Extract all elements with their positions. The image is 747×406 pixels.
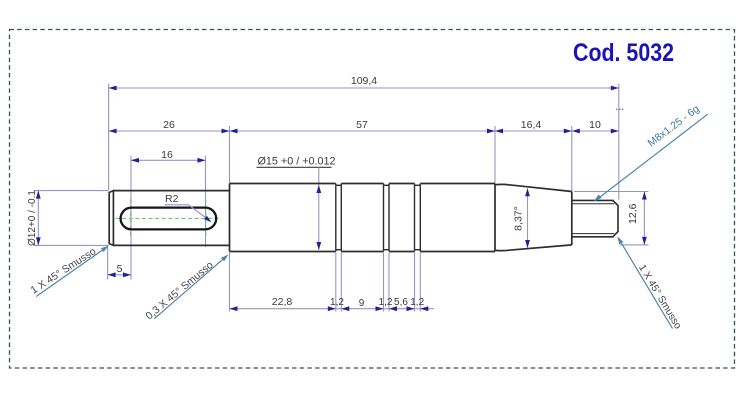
svg-text:16: 16 xyxy=(161,149,173,161)
svg-text:Ø15 +0 / +0.012: Ø15 +0 / +0.012 xyxy=(258,156,336,168)
svg-text:16,4: 16,4 xyxy=(521,119,542,131)
svg-text:109,4: 109,4 xyxy=(351,75,377,87)
svg-text:22,8: 22,8 xyxy=(272,296,293,308)
svg-text:R2: R2 xyxy=(165,193,179,205)
svg-text:Ø12+0 / -0.1: Ø12+0 / -0.1 xyxy=(27,190,38,246)
svg-text:9: 9 xyxy=(359,298,365,309)
svg-text:12,6: 12,6 xyxy=(627,203,639,224)
svg-text:8,37°: 8,37° xyxy=(513,206,525,231)
svg-text:1,2: 1,2 xyxy=(379,297,393,308)
svg-text:26: 26 xyxy=(163,119,175,131)
svg-text:5: 5 xyxy=(117,263,123,275)
svg-text:1,2: 1,2 xyxy=(330,297,344,308)
svg-text:10: 10 xyxy=(589,119,601,131)
svg-text:57: 57 xyxy=(356,119,368,131)
svg-text:1,2: 1,2 xyxy=(410,297,424,308)
svg-text:5,6: 5,6 xyxy=(394,297,408,308)
svg-text:Cod. 5032: Cod. 5032 xyxy=(573,39,674,67)
